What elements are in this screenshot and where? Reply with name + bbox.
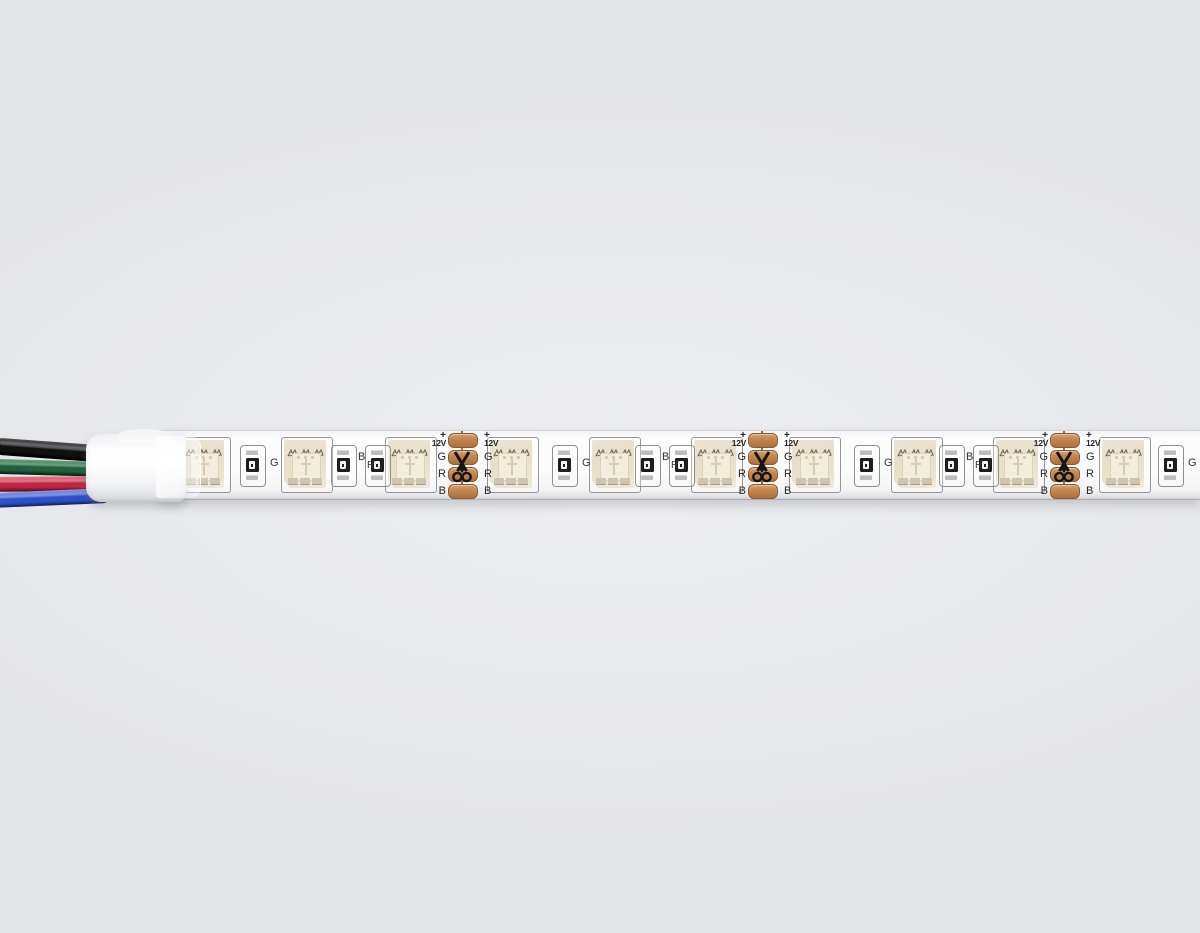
led-electrode-mark	[1105, 444, 1116, 452]
led-chip-mark	[409, 459, 411, 475]
led-electrode-mark	[1012, 444, 1023, 452]
resistor-label-r: R	[367, 460, 374, 471]
led-chip-window	[702, 453, 731, 481]
led-solder-pad	[1024, 478, 1034, 485]
led-solder-pad	[1118, 478, 1128, 485]
led-electrode-mark	[999, 444, 1010, 452]
led-solder-pad	[1130, 478, 1140, 485]
resistor-label-b: B	[662, 452, 669, 463]
led-package	[284, 440, 326, 488]
resistor-bottom-code	[641, 475, 653, 480]
led-chip-dot	[619, 456, 622, 459]
cut-labels-right-b: B	[1086, 485, 1093, 497]
smd-resistor	[240, 445, 266, 487]
scissors-icon	[748, 449, 776, 494]
led-module	[385, 437, 437, 493]
cut-labels-left-r: R	[438, 468, 446, 480]
led-chip-mark	[1017, 459, 1019, 475]
cut-labels-left-b: B	[439, 485, 446, 497]
led-chip-dot	[415, 456, 418, 459]
resistor-bottom-code	[860, 475, 872, 480]
resistor-top-code	[371, 450, 383, 455]
led-chip-mark	[1119, 463, 1129, 465]
led-chip-dot	[311, 456, 314, 459]
led-chip-dot	[921, 456, 924, 459]
led-electrode-mark	[287, 444, 298, 452]
smd-resistor	[331, 445, 357, 487]
smd-resistor	[1158, 445, 1184, 487]
resistor-top-code	[979, 450, 991, 455]
led-solder-pad	[820, 478, 830, 485]
led-chip-dot	[297, 456, 300, 459]
resistor-bottom-code	[371, 475, 383, 480]
led-solder-pad	[620, 478, 630, 485]
cut-labels-left-g: G	[737, 451, 746, 463]
resistor-bottom-code	[246, 475, 258, 480]
led-electrode-mark	[404, 444, 415, 452]
led-solder-pad	[1106, 478, 1116, 485]
led-solder-pad	[596, 478, 606, 485]
led-module	[281, 437, 333, 493]
led-solder-pad	[722, 478, 732, 485]
resistor-body	[246, 458, 259, 472]
led-chip-window	[800, 453, 829, 481]
smd-resistor	[939, 445, 965, 487]
led-module	[589, 437, 641, 493]
cut-labels-left-12v: 12V	[1034, 438, 1048, 448]
led-package	[894, 440, 936, 488]
led-electrode-mark	[211, 444, 222, 452]
led-module	[1099, 437, 1151, 493]
led-solder-pad	[1000, 478, 1010, 485]
led-chip-dot	[1009, 456, 1012, 459]
led-chip-mark	[915, 459, 917, 475]
heat-shrink-clear-film	[156, 436, 201, 498]
resistor-body	[945, 458, 958, 472]
resistor-label-g: G	[884, 458, 893, 469]
led-solder-pad	[1012, 478, 1022, 485]
cut-labels-right-g: G	[484, 451, 493, 463]
resistor-code-glyph	[863, 461, 869, 469]
resistor-code-glyph	[1167, 461, 1173, 469]
led-solder-pad	[710, 478, 720, 485]
led-solder-pad	[608, 478, 618, 485]
led-solder-pad	[210, 478, 220, 485]
led-package	[388, 440, 430, 488]
led-chip-dot	[805, 456, 808, 459]
led-chip-window	[396, 453, 425, 481]
led-electrode-mark	[595, 444, 606, 452]
led-electrode-mark	[897, 444, 908, 452]
led-chip-window	[498, 453, 527, 481]
led-chip-mark	[711, 463, 721, 465]
led-chip-mark	[609, 463, 619, 465]
led-package	[694, 440, 736, 488]
resistor-top-code	[945, 450, 957, 455]
led-chip-window	[1110, 453, 1139, 481]
led-solder-pad	[518, 478, 528, 485]
resistor-label-g: G	[1188, 458, 1197, 469]
led-electrode-mark	[621, 444, 632, 452]
resistor-label-r: R	[975, 460, 982, 471]
led-chip-mark	[809, 463, 819, 465]
led-chip-window	[902, 453, 931, 481]
cut-labels-right-b: B	[484, 485, 491, 497]
led-solder-pad	[808, 478, 818, 485]
cut-labels-right-g: G	[1086, 451, 1095, 463]
resistor-bottom-code	[337, 475, 349, 480]
led-solder-pad	[494, 478, 504, 485]
cut-labels-left-b: B	[739, 485, 746, 497]
led-solder-pad	[312, 478, 322, 485]
resistor-bottom-code	[979, 475, 991, 480]
resistor-top-code	[641, 450, 653, 455]
cut-labels-right-12v: 12V	[484, 438, 498, 448]
led-solder-pad	[922, 478, 932, 485]
cut-labels-left-12v: 12V	[432, 438, 446, 448]
led-chip-mark	[715, 459, 717, 475]
resistor-top-code	[246, 450, 258, 455]
resistor-code-glyph	[948, 461, 954, 469]
led-solder-pad	[796, 478, 806, 485]
led-chip-dot	[907, 456, 910, 459]
led-strip-product-photo: GGGGBRBRBR+12VGRB+12VGRB+12VGRB+12VGRB+1…	[0, 0, 1200, 933]
led-chip-mark	[507, 463, 517, 465]
cut-labels-right-r: R	[1086, 468, 1094, 480]
resistor-top-code	[860, 450, 872, 455]
resistor-body	[1164, 458, 1177, 472]
led-chip-dot	[1129, 456, 1132, 459]
cut-labels-left-r: R	[1040, 468, 1048, 480]
resistor-body	[558, 458, 571, 472]
led-package	[1102, 440, 1144, 488]
resistor-top-code	[675, 450, 687, 455]
cut-labels-right-g: G	[784, 451, 793, 463]
led-chip-mark	[911, 463, 921, 465]
resistor-code-glyph	[982, 461, 988, 469]
led-chip-dot	[401, 456, 404, 459]
led-electrode-mark	[923, 444, 934, 452]
smd-resistor	[854, 445, 880, 487]
cut-labels-left-b: B	[1041, 485, 1048, 497]
cut-labels-right-r: R	[784, 468, 792, 480]
resistor-label-g: G	[582, 458, 591, 469]
resistor-code-glyph	[644, 461, 650, 469]
led-chip-mark	[1013, 463, 1023, 465]
scissors-icon	[448, 449, 476, 494]
led-electrode-mark	[313, 444, 324, 452]
led-chip-dot	[209, 456, 212, 459]
resistor-top-code	[337, 450, 349, 455]
led-chip-dot	[503, 456, 506, 459]
led-solder-pad	[698, 478, 708, 485]
resistor-top-code	[558, 450, 570, 455]
led-electrode-mark	[1131, 444, 1142, 452]
resistor-code-glyph	[340, 461, 346, 469]
scissors-icon	[1050, 449, 1078, 494]
led-chip-window	[292, 453, 321, 481]
led-electrode-mark	[697, 444, 708, 452]
led-chip-dot	[819, 456, 822, 459]
resistor-label-r: R	[671, 460, 678, 471]
smd-resistor	[635, 445, 661, 487]
led-electrode-mark	[608, 444, 619, 452]
led-package	[792, 440, 834, 488]
led-chip-mark	[511, 459, 513, 475]
led-solder-pad	[910, 478, 920, 485]
led-package	[592, 440, 634, 488]
cut-labels-right-12v: 12V	[1086, 438, 1100, 448]
led-package	[996, 440, 1038, 488]
led-electrode-mark	[417, 444, 428, 452]
cut-labels-left-g: G	[437, 451, 446, 463]
led-electrode-mark	[391, 444, 402, 452]
resistor-body	[337, 458, 350, 472]
cut-labels-right-b: B	[784, 485, 791, 497]
resistor-code-glyph	[374, 461, 380, 469]
led-chip-dot	[707, 456, 710, 459]
led-module	[891, 437, 943, 493]
led-strip-body: GGGGBRBRBR+12VGRB+12VGRB+12VGRB+12VGRB+1…	[160, 430, 1200, 499]
cut-labels-left-g: G	[1039, 451, 1048, 463]
copper-solder-pad	[748, 433, 778, 448]
cut-labels-left-r: R	[738, 468, 746, 480]
resistor-label-g: G	[270, 458, 279, 469]
copper-solder-pad	[448, 433, 478, 448]
resistor-bottom-code	[558, 475, 570, 480]
led-chip-mark	[613, 459, 615, 475]
copper-solder-pad	[1050, 433, 1080, 448]
led-electrode-mark	[910, 444, 921, 452]
led-solder-pad	[416, 478, 426, 485]
led-chip-mark	[301, 463, 311, 465]
led-chip-mark	[305, 459, 307, 475]
led-chip-mark	[813, 459, 815, 475]
resistor-bottom-code	[675, 475, 687, 480]
led-solder-pad	[506, 478, 516, 485]
resistor-code-glyph	[678, 461, 684, 469]
led-chip-mark	[405, 463, 415, 465]
led-electrode-mark	[808, 444, 819, 452]
led-chip-dot	[517, 456, 520, 459]
led-electrode-mark	[1118, 444, 1129, 452]
led-electrode-mark	[519, 444, 530, 452]
resistor-code-glyph	[249, 461, 255, 469]
led-solder-pad	[404, 478, 414, 485]
led-solder-pad	[288, 478, 298, 485]
led-chip-window	[1004, 453, 1033, 481]
smd-resistor	[552, 445, 578, 487]
led-electrode-mark	[506, 444, 517, 452]
resistor-label-b: B	[966, 452, 973, 463]
resistor-code-glyph	[561, 461, 567, 469]
led-chip-dot	[721, 456, 724, 459]
led-chip-window	[600, 453, 629, 481]
led-chip-dot	[605, 456, 608, 459]
led-chip-mark	[203, 459, 205, 475]
resistor-body	[641, 458, 654, 472]
led-chip-dot	[1115, 456, 1118, 459]
led-electrode-mark	[710, 444, 721, 452]
led-solder-pad	[392, 478, 402, 485]
resistor-bottom-code	[945, 475, 957, 480]
resistor-label-b: B	[358, 452, 365, 463]
led-chip-dot	[1023, 456, 1026, 459]
cut-labels-right-12v: 12V	[784, 438, 798, 448]
led-electrode-mark	[300, 444, 311, 452]
resistor-bottom-code	[1164, 475, 1176, 480]
led-solder-pad	[300, 478, 310, 485]
led-electrode-mark	[821, 444, 832, 452]
led-solder-pad	[898, 478, 908, 485]
cut-labels-right-r: R	[484, 468, 492, 480]
resistor-top-code	[1164, 450, 1176, 455]
led-chip-mark	[1123, 459, 1125, 475]
resistor-body	[860, 458, 873, 472]
cut-labels-left-12v: 12V	[732, 438, 746, 448]
